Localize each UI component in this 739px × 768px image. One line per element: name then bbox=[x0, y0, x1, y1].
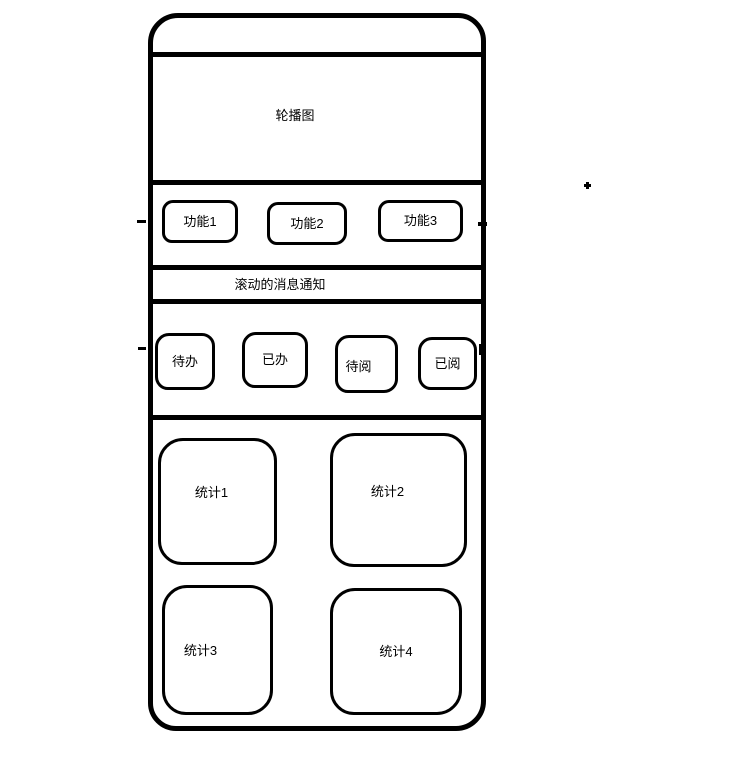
function-button-3-label: 功能3 bbox=[404, 213, 437, 229]
carousel-banner[interactable]: 轮播图 bbox=[153, 57, 481, 180]
stat-card-2[interactable]: 统计2 bbox=[330, 433, 467, 567]
scrolling-notice-label: 滚动的消息通知 bbox=[234, 277, 325, 293]
todo-button[interactable]: 待办 bbox=[155, 333, 215, 390]
stats-grid: 统计1 统计2 统计3 统计4 bbox=[153, 420, 481, 726]
done-button-label: 已办 bbox=[262, 352, 288, 368]
stat-card-1[interactable]: 统计1 bbox=[158, 438, 277, 565]
scrolling-notice-bar[interactable]: 滚动的消息通知 bbox=[153, 270, 481, 299]
stat-card-4-label: 统计4 bbox=[379, 644, 412, 660]
stat-card-4[interactable]: 统计4 bbox=[330, 588, 462, 715]
function-button-1[interactable]: 功能1 bbox=[162, 200, 238, 243]
function-button-row: 功能1 功能2 功能3 bbox=[153, 185, 481, 265]
stat-card-1-label: 统计1 bbox=[195, 485, 228, 501]
read-button[interactable]: 已阅 bbox=[418, 337, 477, 390]
frame-tick-left-bottom bbox=[138, 347, 146, 350]
function-button-3[interactable]: 功能3 bbox=[378, 200, 463, 242]
read-button-label: 已阅 bbox=[434, 356, 460, 372]
to-read-button[interactable]: 待阅 bbox=[335, 335, 398, 393]
phone-screen: 轮播图 功能1 功能2 功能3 滚动的消息通知 bbox=[153, 18, 481, 726]
function-button-2-label: 功能2 bbox=[290, 216, 323, 232]
todo-button-label: 待办 bbox=[172, 354, 198, 370]
to-read-button-label: 待阅 bbox=[345, 359, 371, 375]
phone-frame: 轮播图 功能1 功能2 功能3 滚动的消息通知 bbox=[148, 13, 486, 731]
stat-card-3-label: 统计3 bbox=[184, 643, 217, 659]
stray-plus-mark bbox=[584, 182, 591, 189]
frame-tick-left-top bbox=[137, 220, 146, 223]
function-button-2[interactable]: 功能2 bbox=[267, 202, 347, 245]
action-button-row: 待办 已办 待阅 已阅 bbox=[153, 304, 481, 415]
stat-card-2-label: 统计2 bbox=[371, 484, 404, 500]
function-button-1-label: 功能1 bbox=[183, 214, 216, 230]
frame-tick-right-bottom bbox=[479, 344, 484, 355]
done-button[interactable]: 已办 bbox=[242, 332, 308, 388]
wireframe-canvas: 轮播图 功能1 功能2 功能3 滚动的消息通知 bbox=[0, 0, 739, 768]
carousel-label: 轮播图 bbox=[275, 108, 314, 124]
frame-tick-right-top bbox=[478, 222, 487, 226]
status-bar bbox=[153, 18, 481, 52]
stat-card-3[interactable]: 统计3 bbox=[162, 585, 273, 715]
